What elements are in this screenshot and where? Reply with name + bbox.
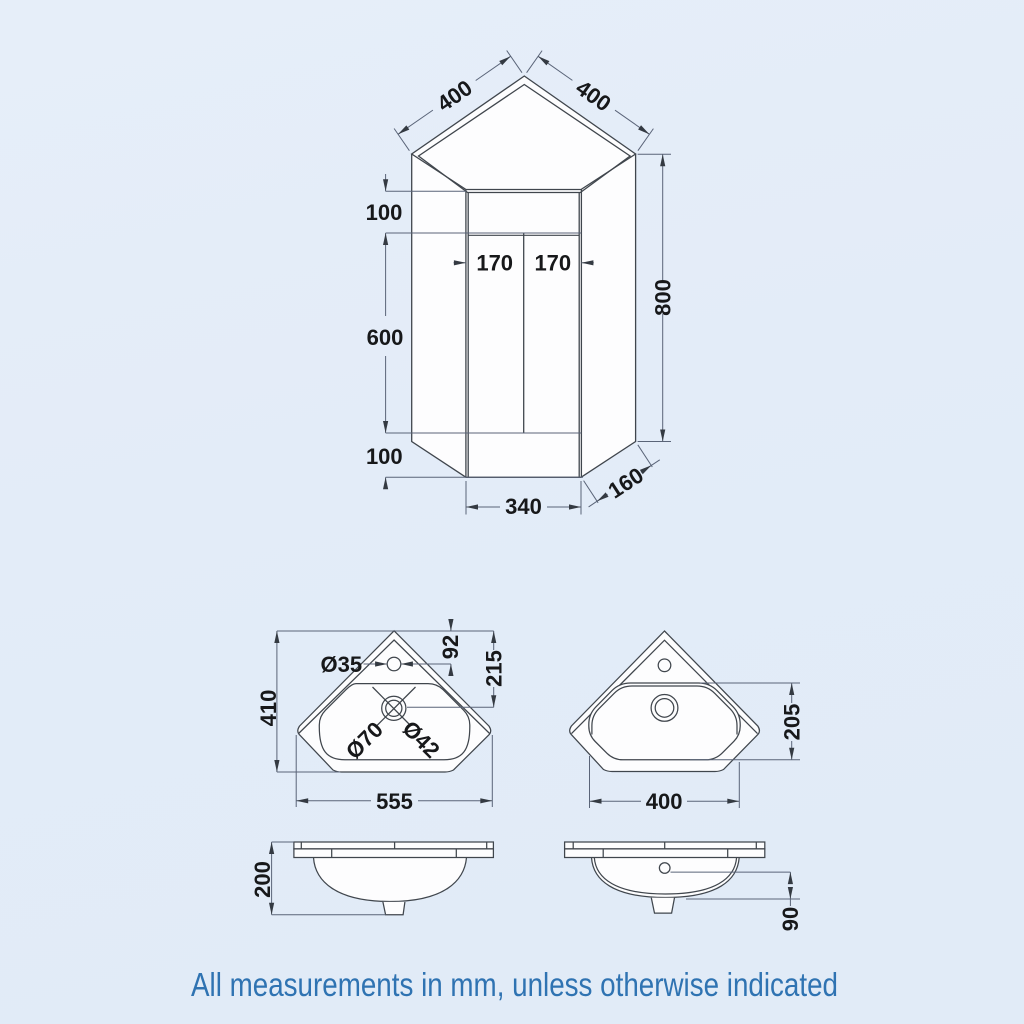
svg-text:100: 100 <box>366 444 403 469</box>
svg-text:200: 200 <box>250 861 275 898</box>
svg-text:600: 600 <box>367 325 404 350</box>
svg-text:410: 410 <box>256 690 281 727</box>
svg-text:800: 800 <box>650 279 675 316</box>
svg-text:170: 170 <box>534 251 571 276</box>
svg-text:400: 400 <box>646 789 683 814</box>
svg-text:340: 340 <box>505 494 542 519</box>
svg-text:All measurements in mm, unless: All measurements in mm, unless otherwise… <box>191 967 838 1004</box>
svg-text:170: 170 <box>476 251 513 276</box>
svg-text:100: 100 <box>366 200 403 225</box>
svg-text:Ø35: Ø35 <box>321 652 363 677</box>
svg-text:90: 90 <box>778 907 803 931</box>
svg-text:215: 215 <box>482 650 507 687</box>
svg-text:92: 92 <box>438 635 463 659</box>
svg-text:205: 205 <box>780 704 805 741</box>
svg-text:555: 555 <box>376 789 413 814</box>
